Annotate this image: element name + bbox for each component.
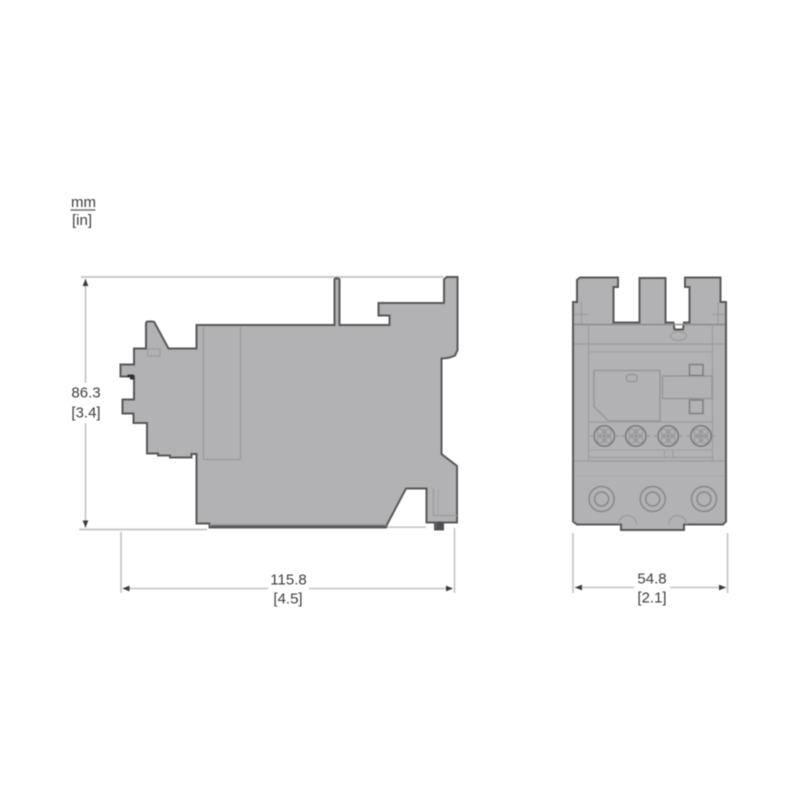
svg-text:115.8: 115.8 [270, 572, 306, 589]
svg-text:[in]: [in] [72, 212, 92, 229]
svg-text:54.8: 54.8 [637, 571, 666, 588]
svg-text:[3.4]: [3.4] [71, 405, 100, 422]
svg-text:86.3: 86.3 [71, 385, 100, 402]
svg-text:[4.5]: [4.5] [273, 591, 302, 608]
svg-text:[2.1]: [2.1] [637, 590, 666, 607]
svg-text:mm: mm [71, 194, 96, 211]
